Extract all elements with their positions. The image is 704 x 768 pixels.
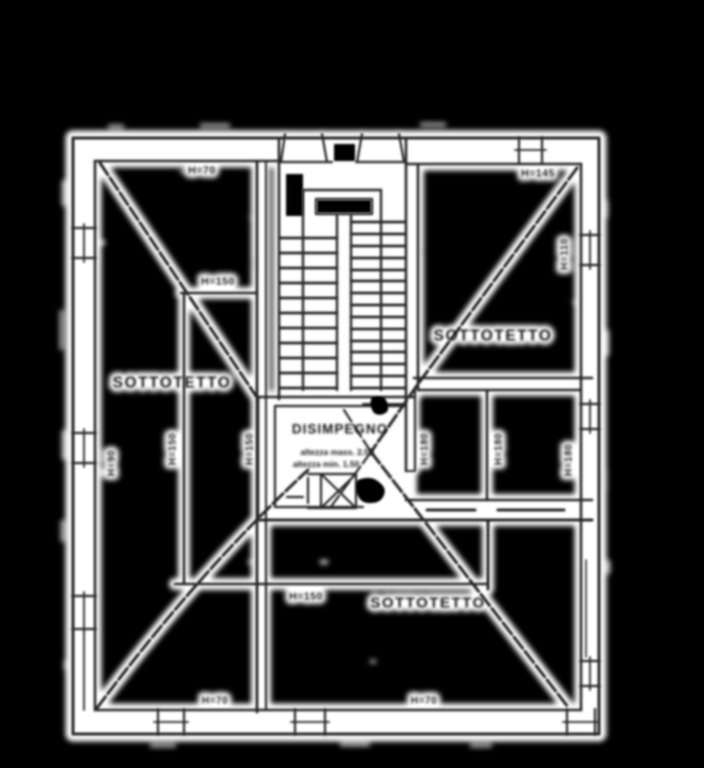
- svg-text:altezza mass. 2.55: altezza mass. 2.55: [300, 447, 374, 457]
- svg-text:altezza min. 1.50: altezza min. 1.50: [293, 459, 360, 469]
- svg-text:SOTTOTETTO: SOTTOTETTO: [113, 374, 232, 391]
- svg-text:H=150: H=150: [168, 433, 179, 465]
- svg-text:H=150: H=150: [201, 276, 235, 288]
- svg-text:H=180: H=180: [564, 444, 575, 476]
- svg-text:H=70: H=70: [188, 165, 215, 177]
- svg-text:H=90: H=90: [107, 450, 118, 476]
- svg-text:H=70: H=70: [202, 696, 228, 707]
- svg-text:H=180: H=180: [420, 433, 431, 465]
- svg-text:H=110: H=110: [560, 238, 571, 270]
- svg-text:H=150: H=150: [245, 433, 256, 465]
- svg-text:SOTTOTETTO: SOTTOTETTO: [434, 327, 553, 344]
- svg-text:H=145: H=145: [521, 168, 555, 180]
- svg-text:DISIMPEGNO: DISIMPEGNO: [292, 422, 388, 437]
- svg-text:H=150: H=150: [289, 591, 323, 603]
- svg-text:H=70: H=70: [411, 696, 437, 707]
- svg-text:H=180: H=180: [494, 433, 505, 465]
- svg-text:SOTTOTETTO: SOTTOTETTO: [370, 594, 485, 611]
